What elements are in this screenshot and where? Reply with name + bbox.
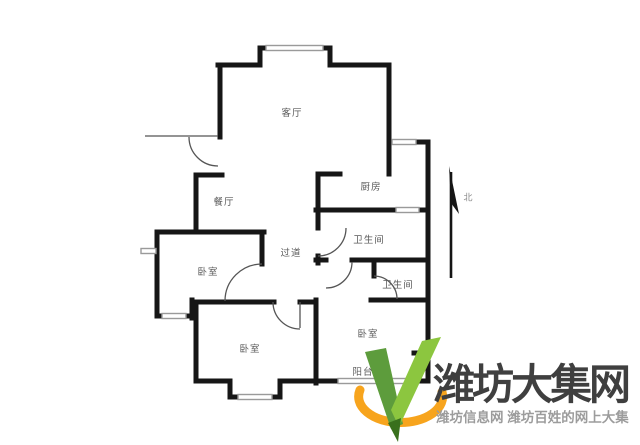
wall-lines (157, 48, 428, 397)
watermark-site-name: 潍坊大集网 (433, 364, 640, 406)
bedroom-right-door-arc (326, 262, 352, 288)
room-label-living: 客厅 (281, 105, 302, 119)
watermark-tagline: 潍坊信息网 潍坊百姓的网上大集 (436, 410, 640, 426)
bath1-door-arc (318, 228, 346, 256)
room-label-balcony: 阳台 (352, 364, 373, 378)
north-arrow-icon (449, 166, 459, 278)
window-left-stub (141, 249, 156, 254)
window-bedroom-left (162, 314, 186, 319)
window-bay-top (266, 46, 323, 51)
bedroom-bottom-door-arc (273, 302, 300, 329)
watermark-logo-icon (359, 337, 443, 442)
entry-door-arc (189, 137, 218, 166)
window-kitchen-top (392, 140, 416, 145)
north-label: 北 (463, 191, 472, 204)
window-kitchen-bottom (396, 208, 419, 213)
room-label-hallway: 过道 (280, 245, 301, 259)
room-label-bedroom-left: 卧室 (197, 264, 218, 278)
room-label-bath2: 卫生间 (382, 277, 414, 291)
room-label-dining: 餐厅 (213, 194, 234, 208)
window-symbols (141, 46, 419, 400)
window-bay-bottom (238, 395, 272, 400)
room-label-bedroom-right: 卧室 (357, 326, 378, 340)
floorplan-screenshot: 客厅 餐厅 厨房 卫生间 过道 卧室 卫生间 卧室 卧室 阳台 北 潍坊大集网 … (0, 0, 640, 445)
bedroom-left-door-arc (225, 264, 262, 301)
room-label-kitchen: 厨房 (360, 179, 381, 193)
room-label-bedroom-bottom: 卧室 (239, 341, 260, 355)
window-balcony (338, 379, 410, 384)
room-label-bath1: 卫生间 (353, 232, 385, 246)
